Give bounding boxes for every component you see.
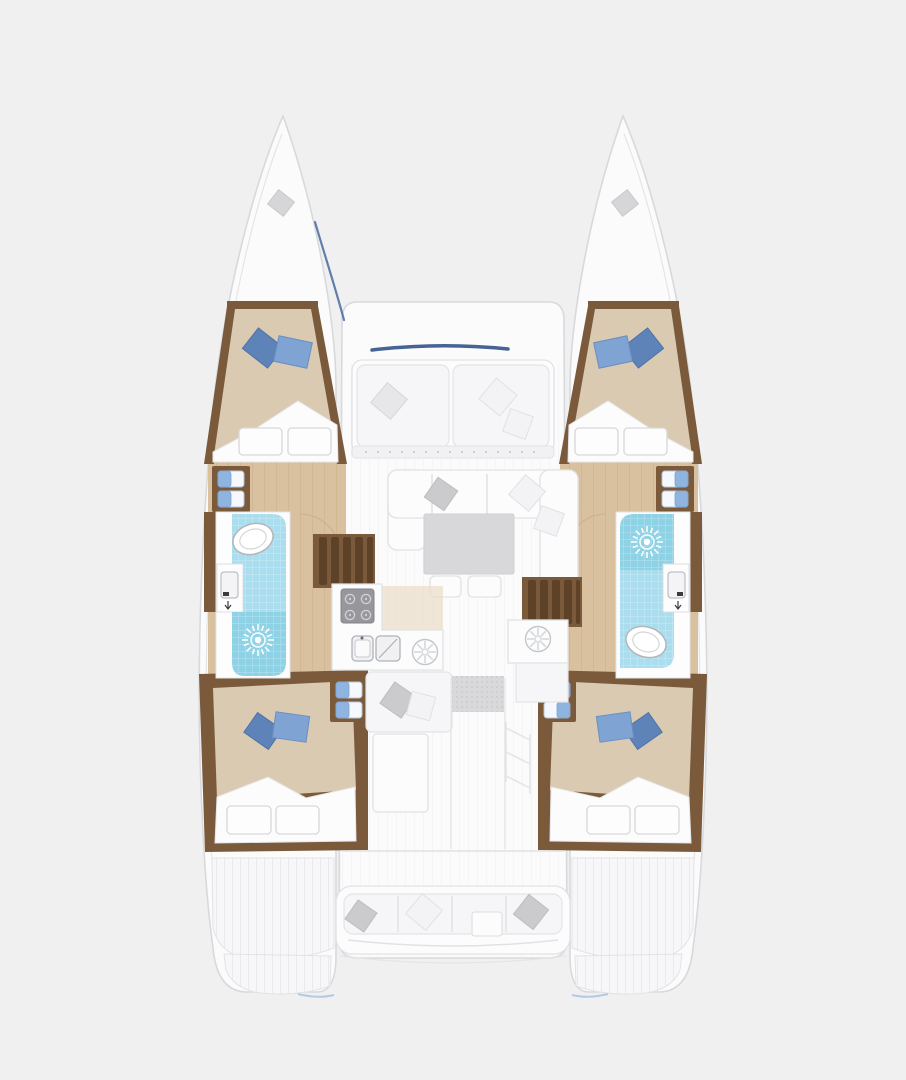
salon-table bbox=[424, 514, 514, 574]
galley-stove bbox=[341, 589, 374, 623]
shower-drain-icon bbox=[242, 624, 274, 656]
nav-counter bbox=[508, 620, 568, 702]
forward-lounge bbox=[352, 360, 554, 458]
galley bbox=[332, 584, 443, 670]
cockpit-table bbox=[472, 912, 502, 936]
head-sink bbox=[217, 564, 243, 612]
galley-sinks bbox=[352, 636, 400, 661]
starboard-head bbox=[616, 512, 702, 678]
ottoman bbox=[468, 576, 501, 597]
round-hatch-icon bbox=[413, 640, 438, 665]
catamaran-deck-plan bbox=[0, 0, 906, 1080]
port-head bbox=[204, 512, 290, 678]
head-sink bbox=[663, 564, 689, 612]
cockpit bbox=[336, 886, 570, 963]
port-companionway-stairs bbox=[313, 534, 375, 588]
catamaran-floor-plan-image bbox=[0, 0, 906, 1080]
aft-salon-seat-panel bbox=[373, 734, 428, 812]
aft-salon-chaise bbox=[366, 672, 452, 732]
shower-drain-icon bbox=[631, 526, 663, 558]
entry-mat bbox=[452, 676, 504, 712]
round-hatch-icon bbox=[526, 627, 551, 652]
